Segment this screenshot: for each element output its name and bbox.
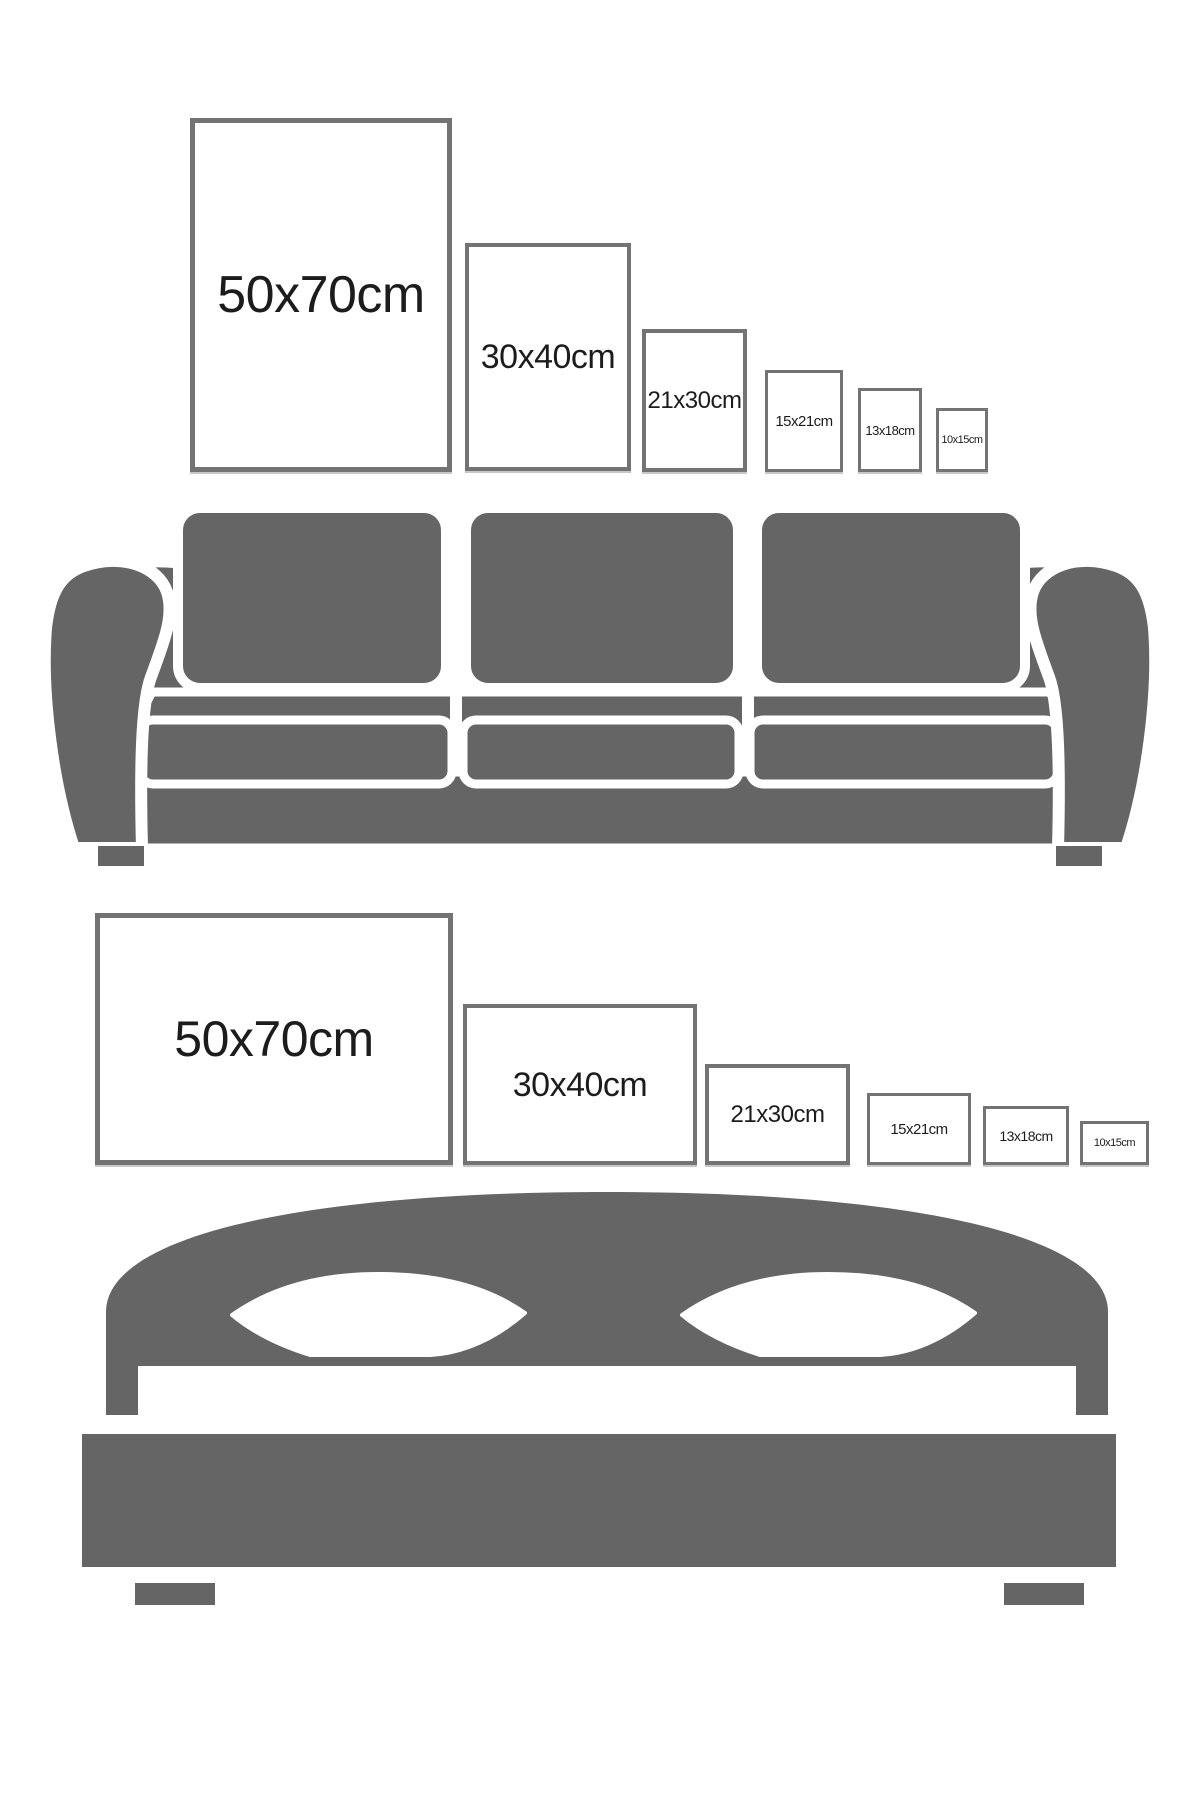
- frame-size-label: 10x15cm: [1094, 1138, 1135, 1149]
- frame-landscape-13x18cm: 13x18cm: [983, 1106, 1069, 1165]
- landscape-frames-row: 50x70cm30x40cm21x30cm15x21cm13x18cm10x15…: [0, 0, 1200, 1800]
- poster-size-guide: 50x70cm30x40cm21x30cm15x21cm13x18cm10x15…: [0, 0, 1200, 1800]
- frame-landscape-15x21cm: 15x21cm: [867, 1093, 971, 1165]
- frame-landscape-30x40cm: 30x40cm: [463, 1004, 697, 1165]
- frame-size-label: 15x21cm: [890, 1122, 947, 1137]
- frame-landscape-50x70cm: 50x70cm: [95, 913, 453, 1165]
- frame-size-label: 13x18cm: [999, 1129, 1052, 1143]
- frame-size-label: 21x30cm: [731, 1103, 825, 1127]
- frame-size-label: 50x70cm: [174, 1014, 373, 1064]
- frame-landscape-21x30cm: 21x30cm: [705, 1064, 850, 1165]
- frame-landscape-10x15cm: 10x15cm: [1080, 1121, 1149, 1165]
- frame-size-label: 30x40cm: [513, 1068, 647, 1102]
